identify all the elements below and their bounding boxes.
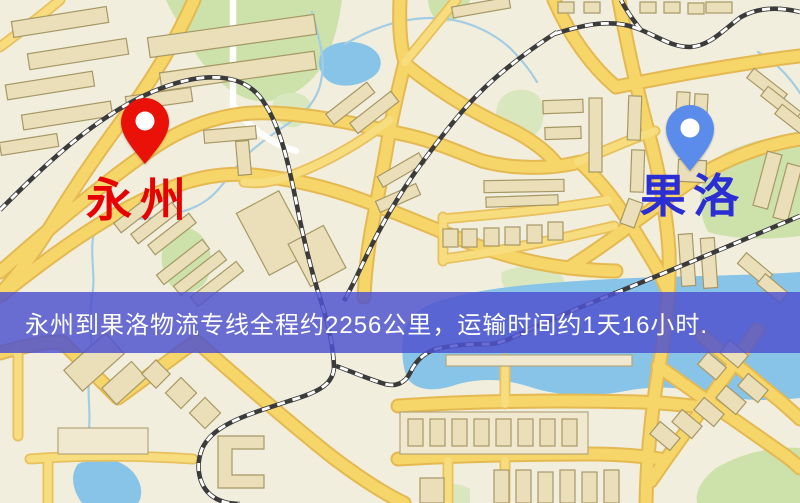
- destination-city-label: 果洛: [640, 174, 746, 220]
- route-info-banner: 永州到果洛物流专线全程约2256公里，运输时间约1天16小时.: [0, 292, 800, 353]
- destination-pin-shape: [666, 105, 714, 171]
- map-background: [0, 0, 800, 503]
- route-info-text: 永州到果洛物流专线全程约2256公里，运输时间约1天16小时.: [25, 305, 708, 340]
- destination-pin-hole: [681, 119, 700, 138]
- destination-pin-icon[interactable]: [662, 103, 718, 173]
- origin-pin-shape: [121, 98, 169, 164]
- origin-pin-hole: [136, 112, 155, 131]
- origin-city-label: 永州: [86, 178, 194, 224]
- origin-pin-icon[interactable]: [117, 96, 173, 166]
- logistics-route-map: 永州 果洛 永州到果洛物流专线全程约2256公里，运输时间约1天16小时.: [0, 0, 800, 503]
